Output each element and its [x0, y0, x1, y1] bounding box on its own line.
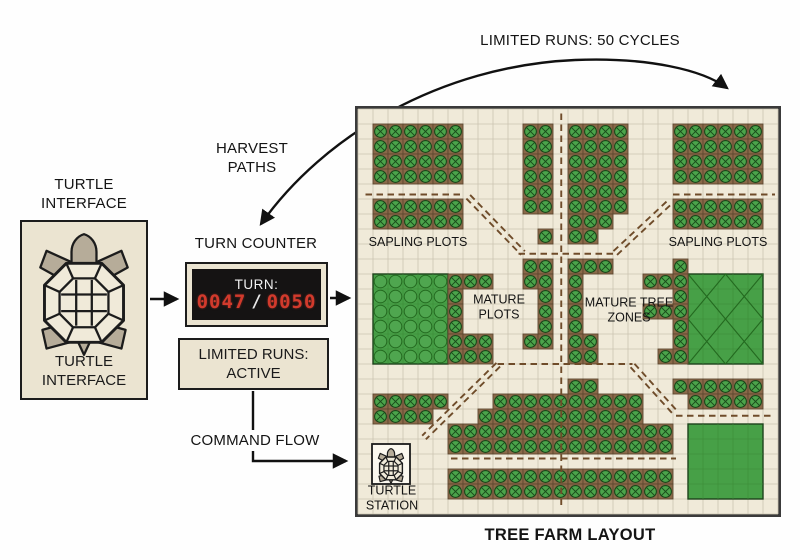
mature-zone-block	[688, 424, 763, 499]
turn-total: 0050	[267, 293, 317, 312]
command-flow-label: COMMAND FLOW	[183, 430, 327, 451]
svg-text:SAPLING PLOTS: SAPLING PLOTS	[369, 235, 468, 249]
tree-farm-svg: SAPLING PLOTSSAPLING PLOTSMATUREPLOTSMAT…	[355, 106, 781, 517]
label-sapling-plots-right: SAPLING PLOTS	[669, 235, 768, 249]
turn-separator: /	[251, 293, 261, 312]
diagram-canvas: TURTLE INTERFACE HARVEST PATHS LIMITED R…	[0, 0, 800, 560]
label-sapling-plots-left: SAPLING PLOTS	[369, 235, 468, 249]
svg-text:SAPLING PLOTS: SAPLING PLOTS	[669, 235, 768, 249]
svg-text:PLOTS: PLOTS	[479, 308, 520, 322]
turn-counter-display: TURN: 0047 / 0050	[185, 262, 328, 327]
svg-text:ZONES: ZONES	[607, 311, 650, 325]
turtle-box-label-line1: TURTLE	[22, 352, 146, 371]
label-mature-plots: MATUREPLOTS	[473, 293, 525, 322]
turtle-interface-box-label: TURTLE INTERFACE	[22, 352, 146, 390]
mature-zone-block	[688, 274, 763, 364]
arrow-arc-to-farm	[575, 60, 727, 88]
harvest-paths-line1: HARVEST	[192, 139, 312, 158]
turn-digits: 0047 / 0050	[197, 293, 317, 312]
status-line1: LIMITED RUNS:	[198, 345, 308, 364]
tree-farm-map: SAPLING PLOTSSAPLING PLOTSMATUREPLOTSMAT…	[355, 106, 781, 522]
turtle-icon	[32, 232, 136, 362]
label-turtle-station: TURTLESTATION	[366, 484, 418, 513]
limited-runs-arc-label: LIMITED RUNS: 50 CYCLES	[440, 31, 720, 50]
farm-title: TREE FARM LAYOUT	[420, 526, 720, 545]
turtle-interface-heading: TURTLE INTERFACE	[4, 175, 164, 213]
turtle-interface-heading-line1: TURTLE	[4, 175, 164, 194]
turtle-station-icon	[378, 449, 403, 484]
mature-zone-block	[373, 274, 448, 364]
svg-text:STATION: STATION	[366, 499, 418, 513]
turn-current: 0047	[197, 293, 247, 312]
svg-text:TURTLE: TURTLE	[368, 484, 416, 498]
turtle-interface-box: TURTLE INTERFACE	[20, 220, 148, 400]
turtle-station	[372, 444, 410, 484]
turn-counter-heading: TURN COUNTER	[176, 234, 336, 253]
turn-label: TURN:	[235, 277, 279, 292]
turtle-box-label-line2: INTERFACE	[22, 371, 146, 390]
turtle-interface-heading-line2: INTERFACE	[4, 194, 164, 213]
harvest-paths-line2: PATHS	[192, 158, 312, 177]
svg-text:MATURE TREE: MATURE TREE	[585, 296, 673, 310]
svg-text:MATURE: MATURE	[473, 293, 525, 307]
seven-segment-screen: TURN: 0047 / 0050	[192, 269, 321, 320]
status-line2: ACTIVE	[226, 364, 280, 383]
harvest-paths-label: HARVEST PATHS	[192, 139, 312, 177]
limited-runs-status-box: LIMITED RUNS: ACTIVE	[178, 338, 329, 390]
